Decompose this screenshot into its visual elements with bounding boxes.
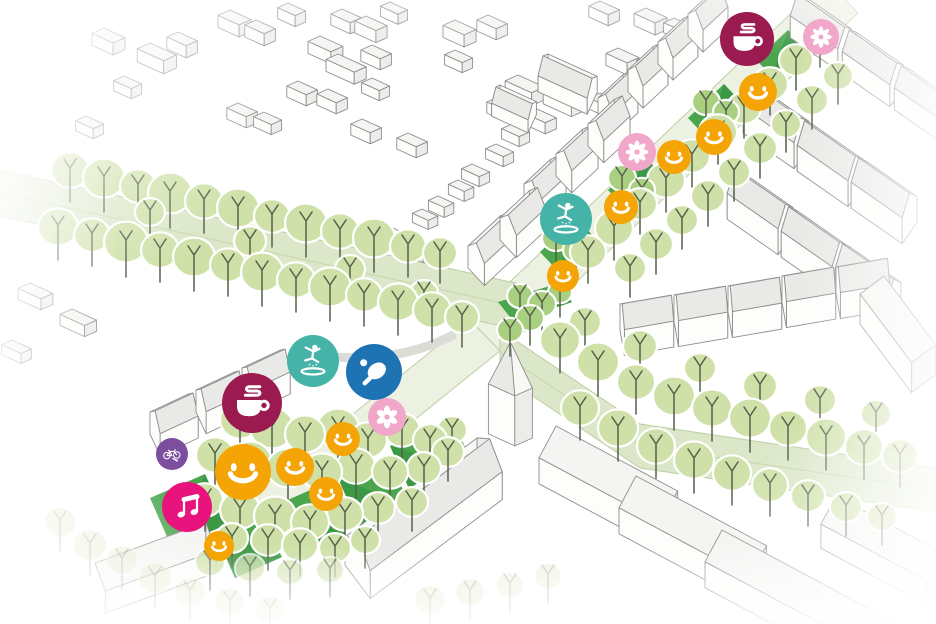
music-icon (162, 482, 212, 532)
trampoline-play-icon (287, 335, 339, 387)
happy-face-icon (326, 422, 360, 456)
flower-icon (618, 133, 656, 171)
flower-icon (368, 398, 406, 436)
cafe-icon (720, 12, 774, 66)
isometric-city-scene (0, 0, 936, 624)
flower-icon (803, 19, 839, 55)
happy-face-icon (739, 73, 777, 111)
happy-face-icon (276, 448, 314, 486)
bike-repair-icon (156, 438, 188, 470)
cafe-icon (222, 373, 282, 433)
happy-face-icon (215, 444, 271, 500)
vignette-fade (0, 0, 936, 624)
happy-face-icon (309, 477, 343, 511)
happy-face-icon (657, 140, 691, 174)
happy-face-icon (604, 190, 638, 224)
table-tennis-icon (346, 344, 402, 400)
layer-fx (0, 0, 936, 624)
urban-plan-illustration (0, 0, 936, 624)
trampoline-play-icon (540, 193, 592, 245)
happy-face-icon (547, 260, 579, 292)
happy-face-icon (696, 119, 732, 155)
happy-face-icon (204, 531, 234, 561)
